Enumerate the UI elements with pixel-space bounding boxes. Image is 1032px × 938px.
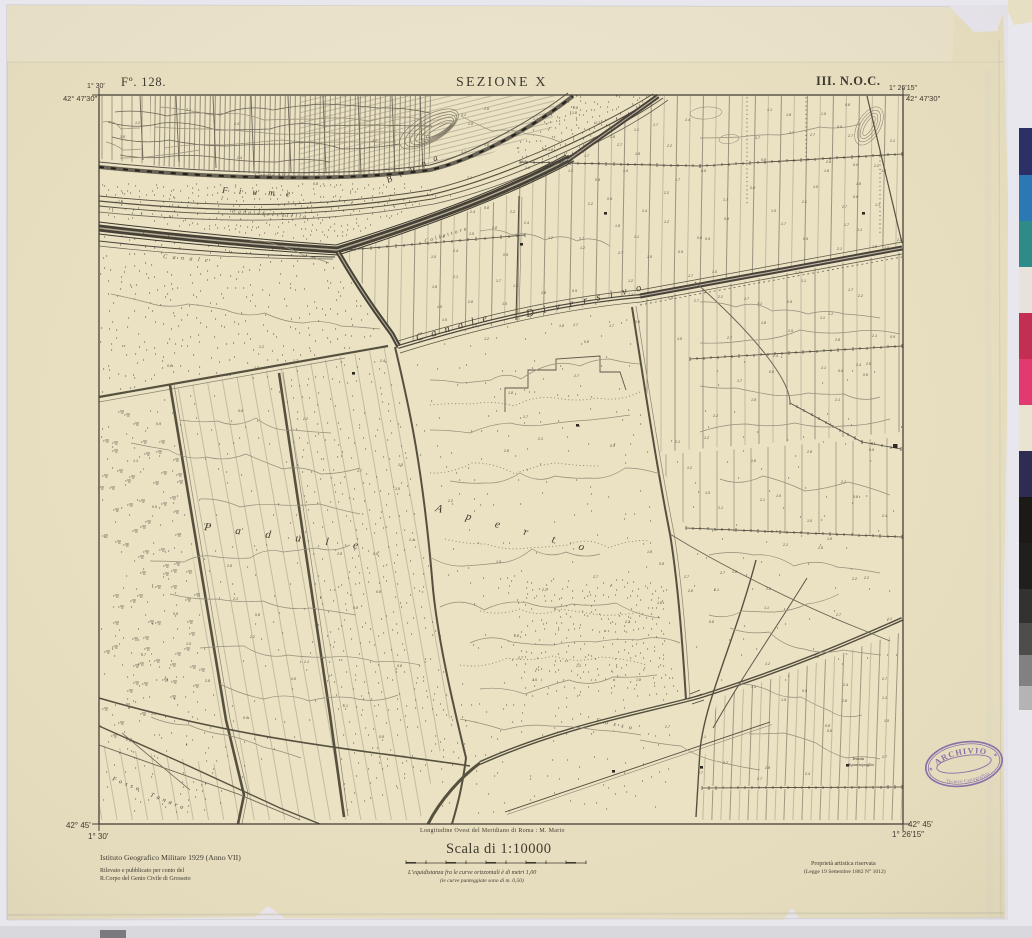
svg-text:0.8: 0.8: [845, 103, 850, 107]
svg-text:0.9: 0.9: [724, 217, 729, 221]
svg-text:0.8: 0.8: [291, 677, 296, 681]
svg-text:2.8: 2.8: [491, 226, 497, 230]
svg-text:0.9: 0.9: [610, 444, 615, 448]
svg-text:2.4: 2.4: [233, 122, 239, 126]
svg-text:2.8: 2.8: [117, 200, 123, 204]
svg-text:2.8: 2.8: [817, 546, 823, 550]
svg-text:2.7: 2.7: [847, 134, 854, 138]
svg-text:1.2: 1.2: [628, 279, 633, 283]
svg-text:2.7: 2.7: [664, 725, 671, 729]
svg-text:2.8: 2.8: [524, 166, 530, 170]
svg-text:1.5: 1.5: [513, 284, 518, 288]
svg-text:0.9: 0.9: [595, 178, 600, 182]
svg-text:2.2: 2.2: [863, 576, 869, 580]
svg-text:1.5: 1.5: [502, 302, 507, 306]
svg-text:1.5: 1.5: [532, 678, 537, 682]
svg-text:2.1: 2.1: [836, 247, 842, 251]
svg-text:III. N.O.C.: III. N.O.C.: [816, 74, 881, 88]
svg-text:2.4: 2.4: [881, 514, 887, 518]
svg-text:1.5: 1.5: [469, 232, 474, 236]
svg-text:1.5: 1.5: [623, 169, 628, 173]
svg-text:1.8: 1.8: [824, 169, 829, 173]
svg-text:2.8: 2.8: [834, 338, 840, 342]
svg-text:0.9: 0.9: [787, 300, 792, 304]
svg-text:2.2: 2.2: [624, 620, 630, 624]
svg-text:1.8: 1.8: [786, 113, 791, 117]
svg-text:0.9: 0.9: [572, 289, 577, 293]
svg-text:0.9: 0.9: [837, 125, 842, 129]
svg-text:1.5: 1.5: [705, 491, 710, 495]
svg-text:2.1: 2.1: [232, 597, 238, 601]
svg-text:SEZIONE X: SEZIONE X: [456, 75, 548, 90]
svg-text:1.5: 1.5: [751, 685, 756, 689]
svg-text:1.2: 1.2: [580, 246, 585, 250]
svg-text:0.8: 0.8: [709, 620, 714, 624]
svg-text:42° 45′: 42° 45′: [66, 821, 91, 830]
svg-text:1.1: 1.1: [718, 506, 723, 510]
svg-text:0.9: 0.9: [803, 237, 808, 241]
svg-text:1.8: 1.8: [647, 550, 652, 554]
svg-text:0.8: 0.8: [761, 158, 766, 162]
svg-text:1.5: 1.5: [398, 463, 403, 467]
svg-text:2.2: 2.2: [302, 417, 308, 421]
svg-text:2.2: 2.2: [782, 543, 788, 547]
svg-text:2.4: 2.4: [452, 249, 458, 253]
svg-text:1.5: 1.5: [884, 719, 889, 723]
svg-text:1.1: 1.1: [576, 664, 581, 668]
svg-text:1.1: 1.1: [767, 108, 772, 112]
svg-text:2.2: 2.2: [541, 588, 547, 592]
svg-text:2.7: 2.7: [726, 336, 733, 340]
svg-text:1.1: 1.1: [133, 459, 138, 463]
svg-text:1.2: 1.2: [704, 436, 709, 440]
svg-text:2.1: 2.1: [674, 440, 680, 444]
svg-text:2.2: 2.2: [666, 144, 672, 148]
svg-text:2.4: 2.4: [855, 363, 861, 367]
svg-text:0.8: 0.8: [255, 613, 260, 617]
svg-text:0.8: 0.8: [825, 724, 830, 728]
svg-text:0.9: 0.9: [678, 250, 683, 254]
svg-text:2.7: 2.7: [578, 237, 585, 241]
svg-text:0.8: 0.8: [659, 562, 664, 566]
svg-text:1.1: 1.1: [801, 279, 806, 283]
svg-text:1.8: 1.8: [548, 148, 553, 152]
svg-text:Proprietà artistica riservata: Proprietà artistica riservata: [811, 861, 876, 867]
svg-text:2.7: 2.7: [809, 133, 816, 137]
svg-text:1.5: 1.5: [781, 698, 786, 702]
svg-text:1.5: 1.5: [807, 519, 812, 523]
svg-text:Istituto Geografico Militare 1: Istituto Geografico Militare 1929 (Anno …: [100, 853, 241, 862]
svg-text:2.1: 2.1: [834, 398, 840, 402]
svg-text:1.2: 1.2: [548, 236, 553, 240]
svg-text:42° 47′30″: 42° 47′30″: [63, 94, 98, 103]
svg-text:2.2: 2.2: [249, 635, 255, 639]
svg-text:2.7: 2.7: [881, 677, 888, 681]
svg-text:(Legge 19 Settembre 1882 N° 10: (Legge 19 Settembre 1882 N° 1012): [804, 868, 886, 875]
svg-text:1.8: 1.8: [572, 111, 577, 115]
svg-text:2.8: 2.8: [503, 449, 509, 453]
svg-text:42° 47′30″: 42° 47′30″: [906, 94, 941, 103]
svg-text:2.2: 2.2: [765, 587, 771, 591]
svg-text:2.4: 2.4: [641, 209, 647, 213]
svg-text:2.4: 2.4: [684, 118, 690, 122]
svg-text:0.9: 0.9: [607, 197, 612, 201]
svg-text:1.2: 1.2: [687, 466, 692, 470]
svg-text:0.9: 0.9: [869, 448, 874, 452]
svg-text:2.7: 2.7: [722, 761, 729, 765]
svg-text:0.8: 0.8: [697, 236, 702, 240]
svg-text:1.8: 1.8: [636, 678, 641, 682]
svg-text:1° 30′: 1° 30′: [87, 82, 105, 90]
svg-text:0.8: 0.8: [573, 106, 578, 110]
svg-text:1.5: 1.5: [151, 712, 156, 716]
svg-text:2.7: 2.7: [693, 299, 700, 303]
svg-text:2.7: 2.7: [743, 297, 750, 301]
svg-text:2.7: 2.7: [756, 777, 763, 781]
svg-text:2.8: 2.8: [513, 634, 519, 638]
svg-text:2.1: 2.1: [460, 113, 466, 117]
svg-text:1.5: 1.5: [881, 169, 886, 173]
svg-text:0.9: 0.9: [890, 335, 895, 339]
svg-text:2.4: 2.4: [842, 683, 848, 687]
svg-text:2.7: 2.7: [616, 143, 623, 147]
svg-text:2.2: 2.2: [663, 191, 669, 195]
svg-text:1.5: 1.5: [771, 209, 776, 213]
svg-text:2.1: 2.1: [303, 660, 309, 664]
svg-text:1.8: 1.8: [732, 570, 737, 574]
svg-text:2.1: 2.1: [820, 366, 826, 370]
svg-text:2.8: 2.8: [687, 589, 693, 593]
svg-text:2.8: 2.8: [540, 291, 546, 295]
svg-text:1.1: 1.1: [875, 203, 880, 207]
svg-text:2.2: 2.2: [896, 238, 902, 242]
svg-text:2.2: 2.2: [509, 210, 515, 214]
svg-text:1.1: 1.1: [882, 696, 887, 700]
svg-text:Squartopaglia: Squartopaglia: [848, 762, 875, 767]
svg-text:2.4: 2.4: [408, 538, 414, 542]
svg-text:2.1: 2.1: [801, 200, 807, 204]
svg-text:2.1: 2.1: [871, 334, 877, 338]
svg-text:2.1: 2.1: [840, 480, 846, 484]
svg-text:2.8: 2.8: [865, 362, 871, 366]
svg-text:1.1: 1.1: [828, 312, 833, 316]
svg-text:2.2: 2.2: [712, 414, 718, 418]
svg-text:2.2: 2.2: [851, 577, 857, 581]
svg-text:1.5: 1.5: [788, 329, 793, 333]
svg-text:0.9: 0.9: [156, 422, 161, 426]
svg-text:2.4: 2.4: [236, 156, 242, 160]
svg-text:1.2: 1.2: [259, 345, 264, 349]
svg-text:0.9: 0.9: [373, 552, 378, 556]
svg-text:2.2: 2.2: [857, 294, 863, 298]
svg-text:1.5: 1.5: [496, 560, 501, 564]
svg-text:1.5: 1.5: [431, 255, 436, 259]
svg-text:1.1: 1.1: [757, 302, 762, 306]
svg-text:1.8: 1.8: [615, 224, 620, 228]
svg-text:1° 30′: 1° 30′: [88, 832, 109, 841]
svg-text:1.1: 1.1: [634, 128, 639, 132]
svg-text:2.8: 2.8: [825, 160, 831, 164]
svg-text:1.8: 1.8: [542, 148, 547, 152]
svg-text:2.2: 2.2: [587, 202, 593, 206]
svg-text:42° 45′: 42° 45′: [908, 820, 933, 829]
svg-text:2.7: 2.7: [697, 771, 704, 775]
svg-text:2.7: 2.7: [356, 469, 363, 473]
svg-text:0.8: 0.8: [484, 143, 489, 147]
svg-text:2.2: 2.2: [447, 499, 453, 503]
svg-text:1.8: 1.8: [751, 398, 756, 402]
svg-text:0.9: 0.9: [635, 320, 640, 324]
svg-text:2.8: 2.8: [841, 699, 847, 703]
svg-text:1.2: 1.2: [765, 662, 770, 666]
svg-text:1.8: 1.8: [856, 182, 861, 186]
svg-text:2.7: 2.7: [881, 755, 888, 759]
svg-text:2.4: 2.4: [469, 210, 475, 214]
svg-text:1.5: 1.5: [677, 337, 682, 341]
svg-text:1.8: 1.8: [432, 285, 437, 289]
svg-text:0.9: 0.9: [701, 169, 706, 173]
svg-text:0.9: 0.9: [668, 296, 673, 300]
svg-text:0.9: 0.9: [503, 253, 508, 257]
svg-text:Rilevato e pubblicato per cont: Rilevato e pubblicato per conto del: [100, 868, 184, 874]
svg-text:0.9: 0.9: [152, 505, 157, 509]
svg-text:0.8: 0.8: [863, 373, 868, 377]
svg-text:1.2: 1.2: [135, 121, 140, 125]
svg-text:0.8: 0.8: [484, 206, 489, 210]
svg-text:2.1: 2.1: [452, 275, 458, 279]
svg-text:1.1: 1.1: [820, 316, 825, 320]
svg-text:1.8: 1.8: [751, 459, 756, 463]
svg-text:0.8: 0.8: [167, 364, 172, 368]
svg-text:1.5: 1.5: [186, 642, 191, 646]
svg-text:1.5: 1.5: [395, 487, 400, 491]
svg-text:Longitudine Ovest del Meridian: Longitudine Ovest del Meridiano di Roma …: [420, 828, 565, 834]
svg-text:Fº. 128.: Fº. 128.: [121, 75, 166, 89]
svg-text:(le curve punteggiate sono di: (le curve punteggiate sono di m. 0,50): [440, 877, 524, 884]
svg-text:1.2: 1.2: [467, 176, 472, 180]
svg-text:1.8: 1.8: [120, 135, 125, 139]
svg-text:1.1: 1.1: [343, 704, 348, 708]
svg-text:1.8: 1.8: [827, 537, 832, 541]
svg-text:Tenuta: Tenuta: [852, 756, 865, 761]
svg-text:2.4: 2.4: [523, 221, 529, 225]
svg-text:2.8: 2.8: [467, 300, 473, 304]
svg-text:1.8: 1.8: [508, 391, 513, 395]
svg-text:1.5: 1.5: [872, 245, 877, 249]
svg-text:2.8: 2.8: [609, 135, 615, 139]
svg-text:2.8: 2.8: [749, 186, 755, 190]
svg-text:1.5: 1.5: [821, 112, 826, 116]
svg-text:0.9: 0.9: [243, 716, 248, 720]
svg-text:2.8: 2.8: [336, 552, 342, 556]
svg-text:1.5: 1.5: [776, 494, 781, 498]
svg-text:0.8: 0.8: [584, 340, 589, 344]
svg-text:2.4: 2.4: [379, 359, 385, 363]
svg-text:0.8: 0.8: [827, 729, 832, 733]
svg-text:1.5: 1.5: [813, 185, 818, 189]
svg-text:0.9: 0.9: [853, 163, 858, 167]
svg-text:2.8: 2.8: [483, 107, 489, 111]
svg-text:0.8: 0.8: [769, 370, 774, 374]
svg-text:1.5: 1.5: [884, 246, 889, 250]
svg-text:2.7: 2.7: [520, 160, 527, 164]
svg-text:1.8: 1.8: [761, 321, 766, 325]
svg-text:0.8: 0.8: [313, 182, 318, 186]
svg-text:1.1: 1.1: [634, 235, 639, 239]
svg-text:0.8: 0.8: [238, 409, 243, 413]
svg-text:1.5: 1.5: [442, 318, 447, 322]
svg-text:2.7: 2.7: [794, 271, 801, 275]
svg-text:2.4: 2.4: [772, 354, 778, 358]
svg-text:1.5: 1.5: [647, 255, 652, 259]
svg-text:1.8: 1.8: [559, 324, 564, 328]
svg-text:L’equidistanza fra le curve or: L’equidistanza fra le curve orizzontali …: [407, 869, 536, 876]
svg-text:1.8: 1.8: [657, 601, 662, 605]
svg-text:1.1: 1.1: [701, 735, 706, 739]
svg-text:0.8: 0.8: [853, 195, 858, 199]
svg-text:2.8: 2.8: [204, 679, 210, 683]
svg-text:0.8: 0.8: [853, 495, 858, 499]
svg-text:2.1: 2.1: [185, 108, 191, 112]
svg-text:1.1: 1.1: [533, 117, 538, 121]
svg-text:2.7: 2.7: [573, 374, 580, 378]
svg-text:1° 26′15″: 1° 26′15″: [892, 830, 924, 839]
svg-text:1.5: 1.5: [712, 270, 717, 274]
svg-text:1.5: 1.5: [437, 305, 442, 309]
svg-text:1.1: 1.1: [887, 617, 892, 621]
svg-text:1.5: 1.5: [254, 366, 259, 370]
svg-text:2.8: 2.8: [226, 564, 232, 568]
svg-text:2.7: 2.7: [683, 575, 690, 579]
svg-text:0.9: 0.9: [705, 237, 710, 241]
svg-text:2.4: 2.4: [225, 373, 231, 377]
svg-text:0.8: 0.8: [376, 590, 381, 594]
svg-text:2.4: 2.4: [804, 772, 810, 776]
svg-text:2.1: 2.1: [537, 437, 543, 441]
svg-text:R.Corpo del Genio Civile di Gr: R.Corpo del Genio Civile di Grosseto: [100, 876, 191, 882]
svg-text:2.8: 2.8: [467, 122, 473, 126]
svg-text:Scala di 1:10000: Scala di 1:10000: [446, 841, 551, 857]
svg-text:2.7: 2.7: [835, 613, 842, 617]
svg-text:2.1: 2.1: [713, 588, 719, 592]
svg-text:2.8: 2.8: [806, 450, 812, 454]
svg-text:2.1: 2.1: [889, 139, 895, 143]
svg-text:2.2: 2.2: [873, 164, 879, 168]
svg-text:2.8: 2.8: [764, 766, 770, 770]
svg-text:1.2: 1.2: [664, 220, 669, 224]
svg-text:0.9: 0.9: [838, 369, 843, 373]
svg-text:2.7: 2.7: [617, 251, 624, 255]
svg-text:2.2: 2.2: [717, 295, 723, 299]
svg-text:1.2: 1.2: [568, 169, 573, 173]
svg-text:0.8: 0.8: [353, 606, 358, 610]
svg-text:1.1: 1.1: [857, 228, 862, 232]
svg-text:1.8: 1.8: [814, 655, 819, 659]
svg-text:0.9: 0.9: [802, 689, 807, 693]
svg-text:2.1: 2.1: [759, 498, 765, 502]
svg-text:1.1: 1.1: [764, 606, 769, 610]
svg-text:2.7: 2.7: [841, 205, 848, 209]
svg-text:1° 26′15″: 1° 26′15″: [889, 84, 918, 92]
svg-text:2.7: 2.7: [719, 571, 726, 575]
svg-text:0.8: 0.8: [379, 735, 384, 739]
svg-text:1.2: 1.2: [484, 337, 489, 341]
svg-text:0.8: 0.8: [397, 664, 402, 668]
svg-text:2.7: 2.7: [517, 656, 524, 660]
svg-text:2.7: 2.7: [592, 575, 599, 579]
svg-text:1.8: 1.8: [635, 152, 640, 156]
svg-text:0.9: 0.9: [173, 612, 178, 616]
